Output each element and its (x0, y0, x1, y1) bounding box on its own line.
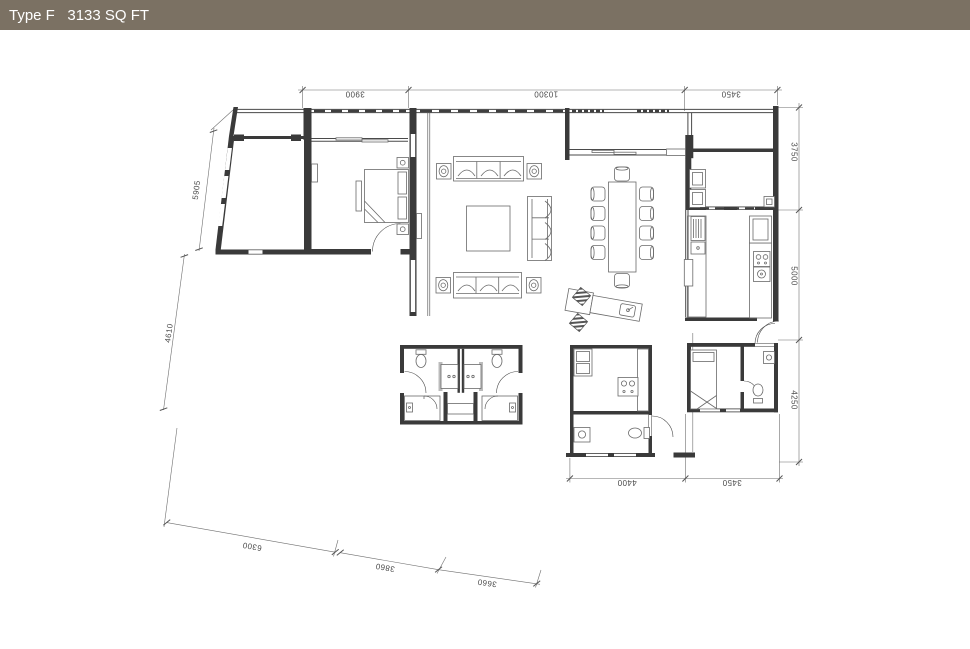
svg-text:3900: 3900 (345, 90, 365, 99)
svg-text:10300: 10300 (534, 90, 558, 99)
svg-text:3450: 3450 (722, 478, 742, 487)
svg-text:3450: 3450 (721, 90, 741, 99)
svg-text:Type F 3133 SQ FT: Type F 3133 SQ FT (9, 7, 149, 24)
svg-text:4250: 4250 (790, 390, 799, 410)
svg-text:4400: 4400 (617, 478, 637, 487)
svg-text:5000: 5000 (790, 266, 799, 286)
svg-text:3750: 3750 (790, 142, 799, 162)
